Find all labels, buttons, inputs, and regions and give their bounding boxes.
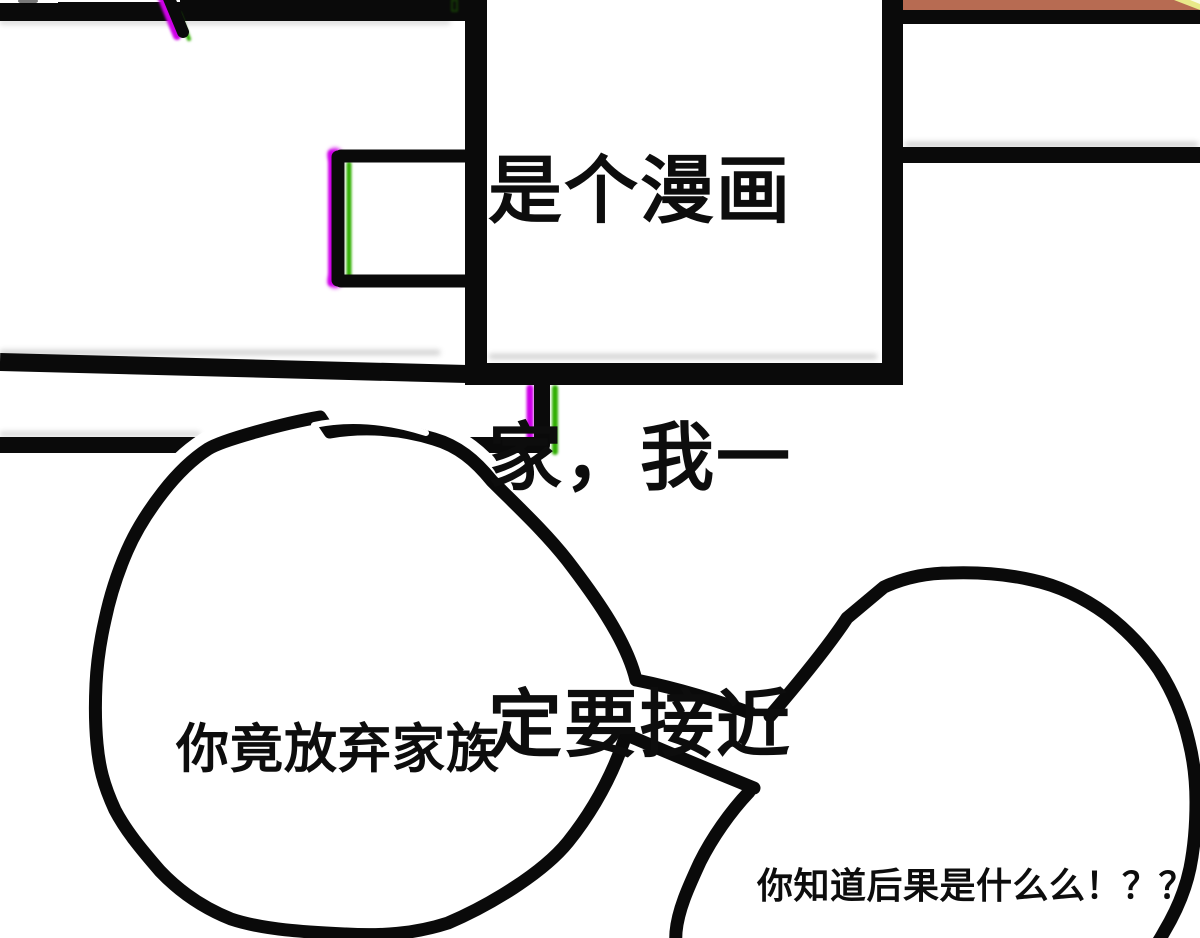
top-bar-upper — [180, 0, 486, 6]
line2-soft-shadow — [0, 432, 200, 436]
right-bubble-line: 你知道后果是什么么！？？ — [757, 860, 1195, 911]
caption-box-right-border — [882, 0, 903, 385]
caption-line: 家，我一 — [488, 413, 792, 502]
panel-line-upper — [0, 362, 467, 374]
left-bubble-line: 你竟放弃家族 — [176, 711, 554, 788]
left-bubble-text: 你竟放弃家族 给你安排的大好 前程！去当什么 漫画编辑？？ — [176, 557, 554, 938]
right-line-soft-shadow — [905, 142, 1198, 147]
top-right-bar — [903, 10, 1200, 24]
comic-page: 是个漫画 家，我一 定要接近 他 你竟放弃家族 给你安排的大好 前程！去当什么 … — [0, 0, 1200, 938]
top-right-panel-border — [903, 0, 1200, 155]
bracket-frame — [328, 148, 470, 288]
line1-soft-shadow — [0, 350, 440, 355]
caption-line: 是个漫画 — [488, 146, 792, 235]
right-bubble-text: 你知道后果是什么么！？？ 你难道要让父亲蒙羞么？！ 身为你的姐姐我是绝对不 会答… — [757, 758, 1195, 938]
caption-box-left-border — [465, 0, 487, 385]
top-left-panel-border — [0, 0, 486, 39]
brown-panel-strip — [903, 0, 1200, 10]
